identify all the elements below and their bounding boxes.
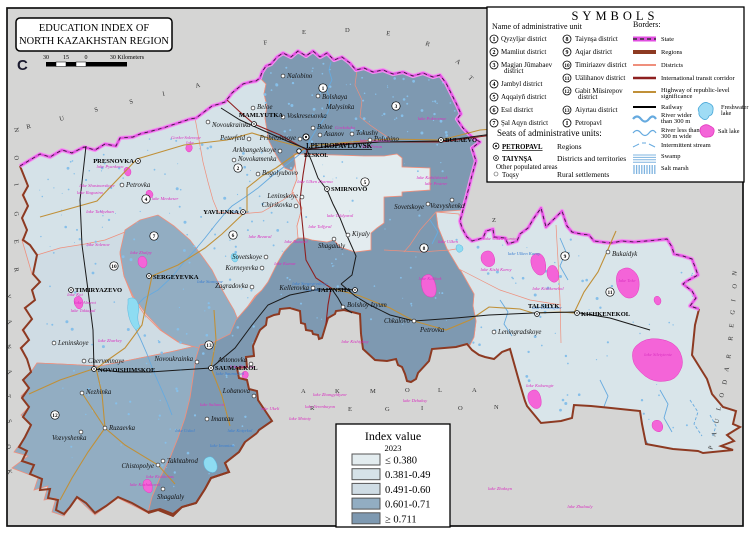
svg-text:N: N [494,404,499,411]
svg-text:12: 12 [564,89,570,95]
svg-text:0.491-0.60: 0.491-0.60 [385,485,431,496]
svg-text:BULAEVO: BULAEVO [445,137,477,144]
svg-text:Rural settlements: Rural settlements [557,170,609,179]
svg-text:lake Siletyteniz: lake Siletyteniz [644,352,672,357]
svg-text:Bukaidyk: Bukaidyk [612,251,638,258]
svg-text:Bogolyubovo: Bogolyubovo [262,170,298,177]
svg-text:G: G [385,406,390,413]
svg-text:Petropavl: Petropavl [575,119,602,127]
svg-text:significance: significance [661,93,693,100]
svg-text:Mamliut district: Mamliut district [501,48,546,56]
svg-text:15: 15 [63,55,69,61]
svg-text:Sovetskoye: Sovetskoye [394,204,424,211]
svg-text:Petrovka: Petrovka [125,182,151,189]
svg-text:O: O [405,387,410,394]
svg-text:Korneyevka: Korneyevka [225,265,259,272]
svg-text:Antonovka: Antonovka [217,357,248,364]
svg-text:C: C [17,57,28,74]
svg-text:7: 7 [493,121,496,127]
svg-text:lake Kabilshevsk: lake Kabilshevsk [417,175,449,180]
svg-text:Nezhinka: Nezhinka [85,389,112,396]
svg-text:Lobanova: Lobanova [222,388,251,395]
svg-text:Esıl district: Esıl district [501,106,533,114]
svg-text:lake Yerenbayon: lake Yerenbayon [305,404,336,409]
svg-text:E: E [302,29,306,36]
svg-text:SMIRNOVO: SMIRNOVO [331,186,367,193]
svg-text:SERGEYEVKA: SERGEYEVKA [153,274,199,281]
svg-text:PETROPAVL: PETROPAVL [502,144,543,151]
svg-text:Swamp: Swamp [661,153,681,160]
svg-text:10: 10 [564,63,570,69]
svg-text:lake Ulken: lake Ulken [438,239,458,244]
svg-text:MAMLYUTKA: MAMLYUTKA [239,112,283,119]
svg-text:Gorkoluka: Gorkoluka [335,125,355,130]
svg-text:Voskresenovka: Voskresenovka [287,113,327,120]
svg-text:I: I [421,405,423,412]
svg-text:Qyzyljar district: Qyzyljar district [501,35,547,43]
svg-text:Aqjar district: Aqjar district [575,48,612,56]
svg-text:Leninskoye: Leninskoye [266,193,298,200]
svg-text:lake Mointy: lake Mointy [289,416,312,421]
svg-text:Sovetskoye: Sovetskoye [232,254,262,261]
svg-text:6: 6 [493,108,496,114]
svg-text:5: 5 [364,180,367,186]
svg-text:lake Ulken Zharma: lake Ulken Zharma [297,179,333,184]
svg-text:Chervonnoye: Chervonnoye [88,358,124,365]
svg-text:Z: Z [492,217,496,224]
svg-text:lake Kishkebas: lake Kishkebas [146,474,174,479]
svg-text:2023: 2023 [385,443,402,453]
svg-text:lake Ragozino: lake Ragozino [77,190,104,195]
svg-text:12: 12 [52,413,58,419]
svg-text:10: 10 [111,264,117,270]
svg-text:Intermittent stream: Intermittent stream [661,142,711,149]
svg-text:lake Ulken Kamin: lake Ulken Kamin [483,236,517,241]
svg-text:lake Teke: lake Teke [618,278,635,283]
svg-text:Taiynşa district: Taiynşa district [575,35,618,43]
svg-text:lake Zhalauly: lake Zhalauly [567,504,593,509]
svg-text:Takhtabrod: Takhtabrod [167,458,198,465]
svg-text:YAVLENKA: YAVLENKA [203,209,239,216]
svg-text:State: State [661,36,674,43]
svg-text:lake Taldyzhan: lake Taldyzhan [86,209,114,214]
svg-text:lake Bezaral: lake Bezaral [248,234,272,239]
svg-text:NORTH KAZAKHSTAN REGION: NORTH KAZAKHSTAN REGION [19,36,169,47]
svg-text:than 300 m: than 300 m [661,118,690,125]
svg-text:TIMIRYAZEVO: TIMIRYAZEVO [75,287,122,294]
svg-text:SAUMALKOL: SAUMALKOL [215,365,258,372]
svg-text:lake Kotyrkol: lake Kotyrkol [228,428,254,433]
svg-text:Regions: Regions [661,49,683,56]
svg-text:Toqsy: Toqsy [502,171,520,179]
svg-text:9: 9 [564,254,567,260]
svg-text:lake Pestroe: lake Pestroe [425,181,448,186]
svg-text:lake Kishtybay: lake Kishtybay [341,339,369,344]
svg-text:lake Saltanat: lake Saltanat [200,402,225,407]
svg-text:1: 1 [322,86,325,92]
svg-text:Beloe: Beloe [257,104,272,111]
svg-text:Peterfeld: Peterfeld [219,135,246,142]
svg-text:TAIYNSHA: TAIYNSHA [317,287,351,294]
svg-text:lake Dzhaksy: lake Dzhaksy [403,398,428,403]
svg-text:300 m wide: 300 m wide [661,133,692,140]
svg-text:Polubino: Polubino [373,136,400,143]
svg-text:lake Alment: lake Alment [74,300,96,305]
svg-text:lake: lake [721,110,732,117]
svg-text:Novoukrainka: Novoukrainka [153,356,193,363]
svg-text:8: 8 [566,37,569,43]
svg-text:lake Menkeser: lake Menkeser [152,196,179,201]
svg-text:Uälihanov district: Uälihanov district [575,74,625,82]
svg-text:district: district [578,93,597,101]
svg-text:lake Kishkenekol: lake Kishkenekol [532,286,564,291]
svg-text:A: A [472,387,477,394]
svg-text:Districts: Districts [661,62,683,69]
svg-text:Other populated areas: Other populated areas [496,163,558,171]
svg-text:Vozvyshenka: Vozvyshenka [52,435,87,442]
svg-text:EDUCATION INDEX OF: EDUCATION INDEX OF [39,23,149,34]
svg-text:Şal Aqyn district: Şal Aqyn district [501,119,548,127]
svg-text:2: 2 [493,50,496,56]
svg-text:13: 13 [206,343,212,349]
svg-text:lake Talfyral: lake Talfyral [308,224,332,229]
svg-text:Bolshoy Izyum: Bolshoy Izyum [347,302,387,309]
svg-text:Zagradovka: Zagradovka [215,283,248,290]
svg-text:Bolshaya: Bolshaya [322,94,348,101]
svg-text:lake Zhaksyn: lake Zhaksyn [488,486,513,491]
svg-text:9: 9 [566,50,569,56]
svg-text:International transit corridor: International transit corridor [661,75,735,82]
svg-text:Novokamenka: Novokamenka [237,156,277,163]
svg-text:lake Kalibek: lake Kalibek [418,276,442,281]
svg-text:TALSHYK: TALSHYK [528,303,559,310]
svg-text:Malysinka: Malysinka [325,104,355,111]
svg-text:Timiriazev district: Timiriazev district [575,61,627,69]
svg-text:Shagalaly: Shagalaly [318,243,346,250]
svg-text:Jambyl district: Jambyl district [501,80,542,88]
svg-text:2: 2 [237,166,240,172]
svg-text:lake Kumar: lake Kumar [274,261,296,266]
svg-text:8: 8 [423,246,426,252]
svg-text:I.PETROPAVLOVSK: I.PETROPAVLOVSK [306,142,373,150]
svg-text:3: 3 [493,63,496,69]
svg-text:Asanov: Asanov [323,131,345,138]
svg-text:Leninskoye: Leninskoye [57,340,89,347]
svg-text:11: 11 [565,76,570,82]
svg-text:≥ 0.711: ≥ 0.711 [385,514,417,525]
svg-text:PRESNOVKA: PRESNOVKA [93,158,134,165]
svg-text:Name of administrative unit: Name of administrative unit [492,22,583,31]
svg-text:Chistopolye: Chistopolye [122,463,154,470]
svg-text:lake Shastnarskoye: lake Shastnarskoye [79,183,114,188]
svg-text:0.601-0.71: 0.601-0.71 [385,500,431,511]
svg-text:lake Bozaral: lake Bozaral [284,239,308,244]
svg-text:L: L [438,387,442,394]
svg-text:lake Ulken Karoy: lake Ulken Karoy [508,251,541,256]
svg-text:TAIYNŞA: TAIYNŞA [502,156,532,163]
svg-text:Beloe: Beloe [317,124,332,131]
svg-text:Districts and territories: Districts and territories [557,154,626,163]
svg-text:lake Taldyaral: lake Taldyaral [327,213,354,218]
svg-text:1: 1 [493,37,496,43]
svg-text:Ruzaevka: Ruzaevka [108,425,136,432]
svg-text:Kiyaly: Kiyaly [351,231,371,238]
svg-text:Regions: Regions [557,142,582,151]
svg-text:lake: lake [186,140,194,145]
svg-text:Petrovka: Petrovka [419,327,445,334]
svg-text:30: 30 [43,55,49,61]
svg-text:Index value: Index value [365,429,421,443]
svg-text:0: 0 [85,55,88,61]
svg-text:Salt lake: Salt lake [718,128,740,135]
svg-text:lake Kazhabarsk: lake Kazhabarsk [130,482,162,487]
svg-text:Chkalovo: Chkalovo [384,318,411,325]
svg-text:4: 4 [145,197,148,203]
svg-text:lake Taktagul: lake Taktagul [71,308,96,313]
svg-text:lake Solenoe: lake Solenoe [86,242,109,247]
svg-text:BESKOL: BESKOL [304,153,328,159]
svg-text:A: A [301,388,306,395]
svg-text:Seats of administrative units:: Seats of administrative units: [497,128,602,138]
svg-text:lake Pokrovnoe: lake Pokrovnoe [418,116,447,121]
svg-text:lake Zharkey: lake Zharkey [98,338,123,343]
svg-text:Railway: Railway [661,104,683,111]
svg-text:KISHKENEKOL: KISHKENEKOL [581,311,631,318]
svg-text:Imantau: Imantau [210,416,234,423]
svg-text:lake Imantau: lake Imantau [210,443,235,448]
svg-text:Arkhangelskoye: Arkhangelskoye [232,147,276,154]
svg-text:D: D [345,27,350,34]
svg-text:≤ 0.380: ≤ 0.380 [385,456,417,467]
svg-text:7: 7 [153,234,156,240]
svg-text:Leningradskoye: Leningradskoye [497,329,541,336]
svg-text:Aiyrtau district: Aiyrtau district [575,106,618,114]
svg-text:lake Kishi Karoy: lake Kishi Karoy [481,267,513,272]
svg-text:NOVOISHIMSKOE: NOVOISHIMSKOE [98,367,155,374]
svg-text:lake Uskol: lake Uskol [175,428,195,433]
svg-text:Chirikovka: Chirikovka [262,202,293,209]
svg-text:Novoukrainka: Novoukrainka [211,122,251,129]
svg-text:lake Zhalpy: lake Zhalpy [130,250,153,255]
svg-text:5: 5 [493,95,496,101]
svg-text:4: 4 [493,82,496,88]
svg-text:Shagalaly: Shagalaly [157,494,185,501]
svg-text:0.381-0.49: 0.381-0.49 [385,470,431,481]
svg-text:Kellerovka: Kellerovka [278,285,309,292]
svg-text:Pribrezhnoye: Pribrezhnoye [259,135,296,142]
svg-text:3: 3 [395,104,398,110]
svg-text:O: O [458,405,463,412]
svg-text:Borders:: Borders: [633,20,661,29]
svg-text:M: M [370,388,376,395]
svg-text:Aqqaiyñ district: Aqqaiyñ district [501,93,546,101]
svg-text:Vozvyshenka: Vozvyshenka [430,203,465,210]
svg-text:30 Kilometers: 30 Kilometers [110,55,145,61]
svg-text:lake Zhangyldyzor: lake Zhangyldyzor [313,392,347,397]
svg-text:lake Koksengir: lake Koksengir [526,383,554,388]
svg-text:11: 11 [607,290,612,296]
svg-text:6: 6 [232,233,235,239]
svg-text:E: E [348,406,352,413]
svg-text:district: district [504,67,523,75]
svg-text:13: 13 [564,108,570,114]
svg-text:lake Ukeli: lake Ukeli [261,406,280,411]
svg-text:Nalobino: Nalobino [286,73,313,80]
svg-text:Salt marsh: Salt marsh [661,165,689,172]
